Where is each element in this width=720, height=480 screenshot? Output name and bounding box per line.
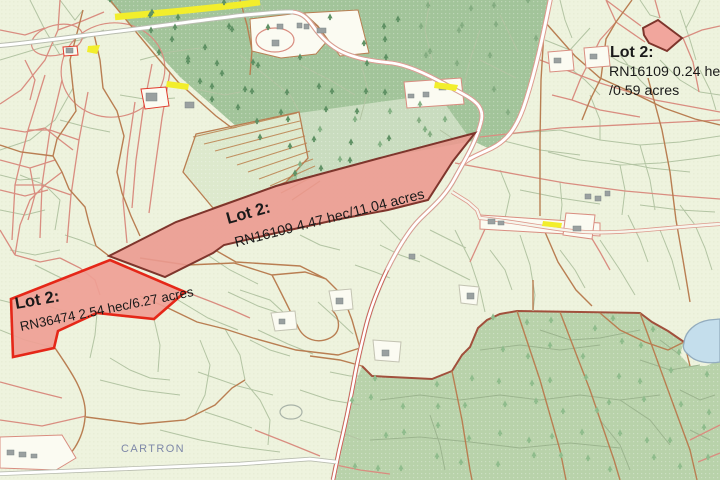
- svg-text:/0.59 acres: /0.59 acres: [609, 83, 679, 99]
- svg-text:CARTRON: CARTRON: [121, 443, 185, 455]
- svg-text:Lot 2:: Lot 2:: [610, 44, 654, 61]
- svg-text:RN16109 0.24 hec: RN16109 0.24 hec: [609, 64, 720, 80]
